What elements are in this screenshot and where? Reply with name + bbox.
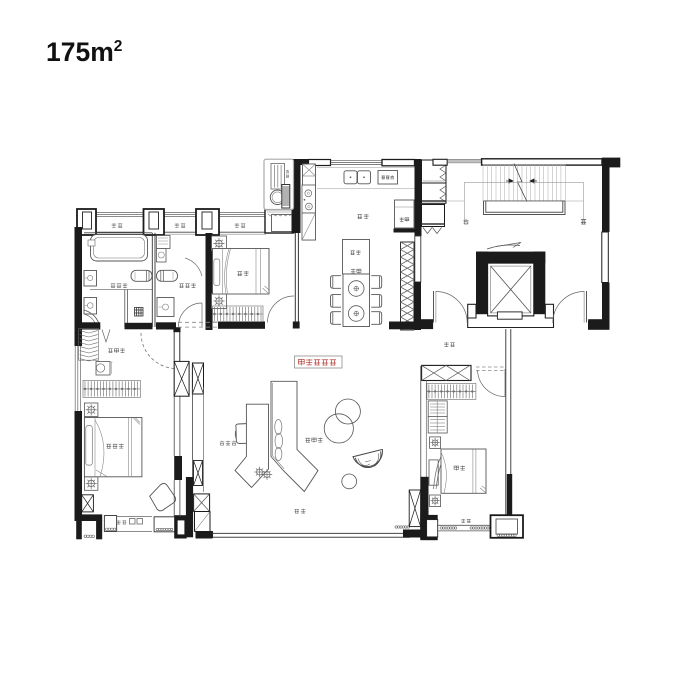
svg-text:175m2: 175m2 [46,37,122,67]
